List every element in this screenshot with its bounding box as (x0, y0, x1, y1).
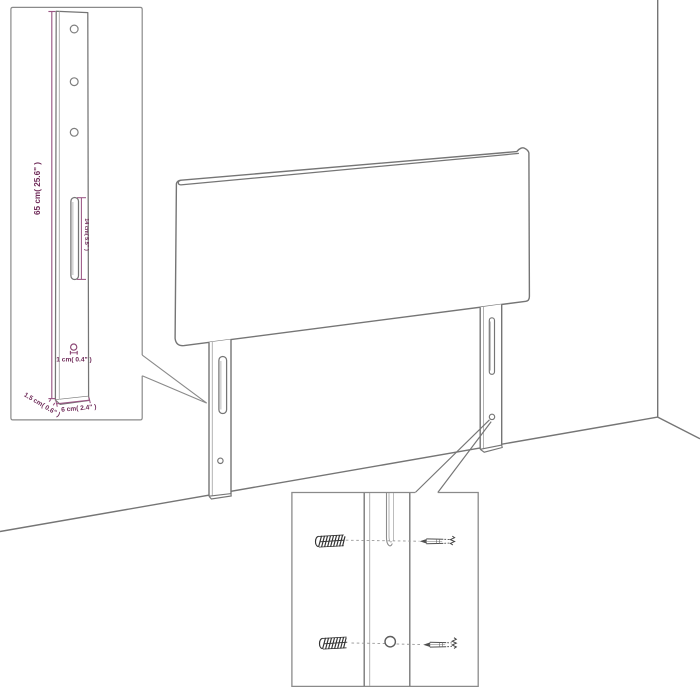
svg-text:14 cm( 5.5" ): 14 cm( 5.5" ) (83, 218, 89, 251)
svg-text:65 cm( 25.6" ): 65 cm( 25.6" ) (33, 162, 42, 215)
svg-text:1 cm( 0.4" ): 1 cm( 0.4" ) (56, 357, 91, 364)
